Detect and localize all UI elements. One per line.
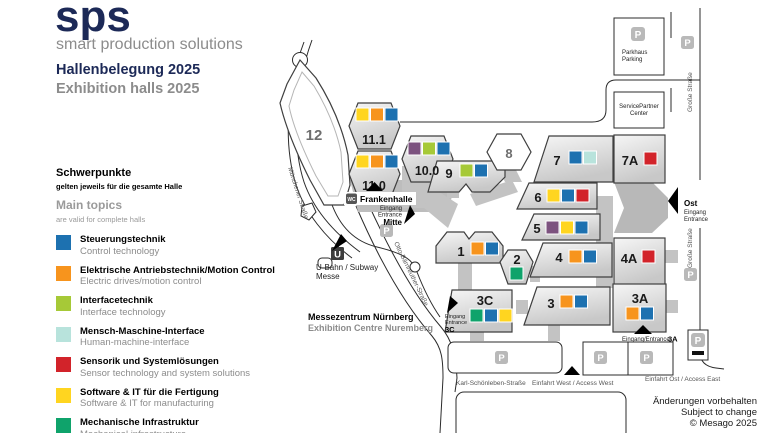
topic-chip-control: [575, 295, 588, 308]
legend-label-de: Interfacetechnik: [80, 295, 166, 307]
chips-11-1: [356, 108, 398, 121]
hall-12-label: 12: [306, 127, 323, 144]
svg-text:U-Bahn / Subway: U-Bahn / Subway: [316, 263, 378, 272]
topics-header-en-sub: are valid for complete halls: [56, 215, 145, 224]
legend-label-en: Interface technology: [80, 307, 166, 319]
hall-11-1-label: 11.1: [362, 133, 386, 147]
topic-chip-sensor: [576, 189, 589, 202]
svg-text:Exhibition Centre Nuremberg: Exhibition Centre Nuremberg: [308, 323, 433, 333]
legend-item-interface: InterfacetechnikInterface technology: [56, 295, 296, 318]
svg-text:P: P: [695, 336, 702, 347]
legend-item-text: Mechanische InfrastrukturMechanical infr…: [80, 417, 199, 433]
legend-item-sensor: Sensorik und SystemlösungenSensor techno…: [56, 356, 296, 379]
parking-lot-south: [456, 392, 626, 433]
topic-chip-control: [437, 142, 450, 155]
access-east-label: Einfahrt Ost / Access East: [645, 376, 720, 383]
hall-7-label: 7: [553, 153, 560, 168]
topic-chip-control: [562, 189, 575, 202]
page-title-en: Exhibition halls 2025: [56, 81, 199, 97]
hall-3c-label: 3C: [477, 293, 494, 308]
parking-icon-lot-east2: P: [640, 351, 653, 364]
legend-label-en: Control technology: [80, 246, 166, 258]
topic-chip-interface: [460, 164, 473, 177]
chips-5: [546, 221, 588, 234]
legend-item-text: Elektrische Antriebstechnik/Motion Contr…: [80, 265, 275, 288]
access-west-label: Einfahrt West / Access West: [532, 380, 614, 387]
entrance-ost-label: Ost Eingang Entrance: [684, 199, 709, 223]
chips-3c: [470, 309, 512, 322]
arrow-west: [564, 366, 580, 375]
street-karl: Karl-Schönleben-Straße: [456, 380, 526, 387]
topic-chip-control: [584, 250, 597, 263]
legend-item-text: Mensch-Maschine-InterfaceHuman-machine-i…: [80, 326, 205, 349]
topic-chip-interface: [423, 142, 436, 155]
software-color-swatch: [56, 388, 71, 403]
legend-item-text: Software & IT für die FertigungSoftware …: [80, 387, 219, 410]
topic-chip-sensor: [642, 250, 655, 263]
svg-text:P: P: [643, 353, 650, 364]
topic-chip-mech: [510, 267, 523, 280]
parkhaus-building: [614, 18, 664, 75]
svg-text:Center: Center: [630, 111, 648, 117]
legend-label-de: Mechanische Infrastruktur: [80, 417, 199, 429]
interface-color-swatch: [56, 296, 71, 311]
topic-chip-software: [356, 108, 369, 121]
topics-header-de-sub: gelten jeweils für die gesamte Halle: [56, 182, 182, 191]
legend-item-mech: Mechanische InfrastrukturMechanical infr…: [56, 417, 296, 433]
chips-6: [547, 189, 589, 202]
topic-chip-control: [641, 307, 654, 320]
topic-chip-control: [486, 242, 499, 255]
control-color-swatch: [56, 235, 71, 250]
connector-2-3: [516, 300, 528, 314]
legend-label-de: Elektrische Antriebstechnik/Motion Contr…: [80, 265, 275, 277]
legend-item-text: InterfacetechnikInterface technology: [80, 295, 166, 318]
svg-text:Mitte: Mitte: [383, 218, 402, 227]
legend-item-text: Sensorik und SystemlösungenSensor techno…: [80, 356, 250, 379]
parking-icon-lot-west: P: [495, 351, 508, 364]
svg-text:Messezentrum Nürnberg: Messezentrum Nürnberg: [308, 312, 414, 322]
page-title-de: Hallenbelegung 2025: [56, 62, 200, 78]
topic-chip-mech: [470, 309, 483, 322]
topic-chip-software: [356, 155, 369, 168]
svg-text:ServicePartner: ServicePartner: [619, 104, 659, 110]
subway-icon: U: [331, 247, 344, 261]
svg-text:P: P: [597, 353, 604, 364]
legend-list: SteuerungstechnikControl technologyElekt…: [56, 234, 296, 433]
entrance-mitte-label: Eingang Entrance Mitte: [378, 206, 403, 227]
street-grosse-top: Große Straße: [687, 72, 694, 112]
street-muenchener: Münchener Straße: [286, 166, 309, 220]
topic-chip-drives: [560, 295, 573, 308]
svg-text:Eingang: Eingang: [684, 210, 706, 216]
svg-text:Änderungen vorbehalten: Änderungen vorbehalten: [653, 396, 757, 407]
legend-label-en: Human-machine-interface: [80, 337, 205, 349]
svg-text:Eingang: Eingang: [380, 206, 402, 212]
topic-chip-software: [499, 309, 512, 322]
hall-5-label: 5: [533, 221, 540, 236]
hall-7a-label: 7A: [622, 153, 639, 168]
topic-chip-control: [575, 221, 588, 234]
hall-4-label: 4: [555, 250, 563, 265]
hall-3-label: 3: [547, 296, 554, 311]
street-grosse-mid: Große Straße: [687, 228, 694, 268]
svg-text:P: P: [383, 226, 390, 237]
topic-chip-control: [475, 164, 488, 177]
topic-chip-control: [385, 108, 398, 121]
footer-note: Änderungen vorbehalten Subject to change…: [653, 396, 757, 429]
hall-10-0-label: 10.0: [415, 164, 439, 178]
legend-label-de: Steuerungstechnik: [80, 234, 166, 246]
legend-item-control: SteuerungstechnikControl technology: [56, 234, 296, 257]
topic-chip-comm: [546, 221, 559, 234]
svg-text:WC: WC: [347, 197, 356, 203]
topic-chip-hmi: [584, 151, 597, 164]
svg-text:Messe: Messe: [316, 272, 340, 281]
topic-chip-drives: [371, 155, 384, 168]
svg-text:Entrance: Entrance: [684, 217, 709, 223]
topic-chip-software: [547, 189, 560, 202]
legend-label-de: Mensch-Maschine-Interface: [80, 326, 205, 338]
topic-chip-comm: [408, 142, 421, 155]
chips-4a: [642, 250, 655, 263]
hall-6-label: 6: [534, 190, 541, 205]
servicepartner-building: [614, 92, 664, 128]
svg-text:© Mesago 2025: © Mesago 2025: [690, 418, 757, 429]
parking-icon-parkhaus: P: [631, 27, 645, 41]
svg-text:P: P: [684, 38, 691, 49]
topics-header-de: Schwerpunkte: [56, 167, 131, 179]
hall-9-label: 9: [445, 166, 452, 181]
legend-label-en: Electric drives/motion control: [80, 276, 275, 288]
legend-label-de: Software & IT für die Fertigung: [80, 387, 219, 399]
parking-icon-lot-east1: P: [594, 351, 607, 364]
frankenhalle-label: Frankenhalle: [360, 194, 413, 204]
hall-4a-label: 4A: [621, 251, 638, 266]
parking-icon-grosse-mid: P: [684, 268, 697, 281]
legend-label-de: Sensorik und Systemlösungen: [80, 356, 250, 368]
chips-2: [510, 267, 523, 280]
topic-chip-control: [385, 155, 398, 168]
svg-text:Ost: Ost: [684, 199, 698, 208]
subway-label: U-Bahn / Subway Messe: [316, 263, 378, 281]
parking-icon-pr: P: [691, 333, 705, 355]
hall-8-label: 8: [505, 146, 512, 161]
topic-chip-drives: [626, 307, 639, 320]
topic-chip-control: [485, 309, 498, 322]
legend-label-en: Software & IT for manufacturing: [80, 398, 219, 410]
hall-1-label: 1: [457, 244, 464, 259]
sps-tagline: smart production solutions: [56, 36, 243, 54]
hall-3a-label: 3A: [632, 291, 649, 306]
hmi-color-swatch: [56, 327, 71, 342]
topic-chip-drives: [471, 242, 484, 255]
topic-chip-drives: [371, 108, 384, 121]
chips-10-0: [408, 142, 450, 155]
svg-text:Eingang/Entrance: Eingang/Entrance: [622, 337, 670, 343]
chips-11-0: [356, 155, 398, 168]
sensor-color-swatch: [56, 357, 71, 372]
mech-color-swatch: [56, 418, 71, 433]
svg-text:P: P: [498, 353, 505, 364]
venue-label: Messezentrum Nürnberg Exhibition Centre …: [308, 312, 433, 333]
topic-chip-control: [569, 151, 582, 164]
arrow-ost: [668, 187, 678, 214]
chips-7a: [644, 152, 657, 165]
topics-header-en: Main topics: [56, 198, 122, 212]
topic-chip-drives: [569, 250, 582, 263]
topic-chip-sensor: [644, 152, 657, 165]
svg-text:3C: 3C: [445, 325, 455, 334]
svg-text:Parkhaus: Parkhaus: [622, 50, 647, 56]
svg-text:3A: 3A: [668, 335, 678, 344]
entrance-3a-label: Eingang/Entrance 3A: [622, 335, 678, 344]
svg-text:P: P: [687, 270, 694, 281]
ost-plaza: [614, 182, 668, 233]
connector-1-3c: [458, 263, 472, 290]
legend-item-hmi: Mensch-Maschine-InterfaceHuman-machine-i…: [56, 326, 296, 349]
legend-item-software: Software & IT für die FertigungSoftware …: [56, 387, 296, 410]
svg-text:U: U: [334, 250, 341, 261]
legend-label-en: Sensor technology and system solutions: [80, 368, 250, 380]
parking-icon-grosse-top: P: [681, 36, 694, 49]
drives-color-swatch: [56, 266, 71, 281]
svg-text:P: P: [635, 30, 642, 41]
page: sps smart production solutions Hallenbel…: [0, 0, 768, 433]
legend-item-text: SteuerungstechnikControl technology: [80, 234, 166, 257]
street-otto: Otto-Bärnreuther-Straße: [392, 241, 429, 308]
hall-2-label: 2: [513, 252, 520, 267]
svg-text:Subject to change: Subject to change: [681, 407, 757, 418]
svg-text:Parking: Parking: [622, 57, 642, 63]
legend-item-drives: Elektrische Antriebstechnik/Motion Contr…: [56, 265, 296, 288]
topic-chip-software: [561, 221, 574, 234]
legend-label-en: Mechanical infrastructure: [80, 429, 199, 433]
connector-3-s: [548, 325, 560, 341]
